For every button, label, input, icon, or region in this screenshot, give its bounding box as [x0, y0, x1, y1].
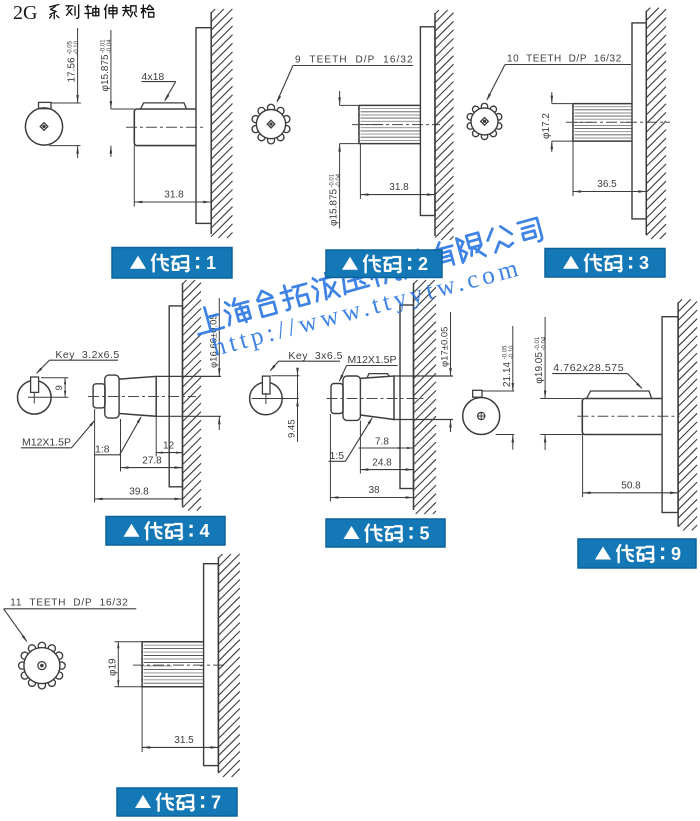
svg-text:27.8: 27.8 [142, 455, 162, 466]
svg-text:φ19: φ19 [107, 658, 118, 676]
svg-text:9.45: 9.45 [286, 420, 297, 439]
svg-text:39.8: 39.8 [129, 487, 149, 498]
svg-text:24.8: 24.8 [372, 457, 392, 468]
svg-text:4: 4 [199, 521, 209, 541]
svg-text:-0.10: -0.10 [509, 345, 515, 359]
svg-text:φ17±0.05: φ17±0.05 [440, 327, 451, 367]
svg-text:21.14: 21.14 [502, 362, 513, 387]
svg-text:7.8: 7.8 [375, 437, 389, 448]
svg-text:φ15.875: φ15.875 [100, 54, 111, 92]
svg-text:4.762x28.575: 4.762x28.575 [553, 362, 624, 374]
svg-text:17.56: 17.56 [67, 57, 78, 82]
svg-text:9: 9 [54, 385, 65, 390]
svg-text:38: 38 [368, 485, 380, 496]
svg-text:12: 12 [163, 440, 175, 451]
svg-text:-0.01: -0.01 [535, 336, 541, 350]
svg-text:2: 2 [418, 254, 428, 274]
svg-text:10 TEETH D/P 16/32: 10 TEETH D/P 16/32 [507, 54, 622, 65]
svg-text:50.8: 50.8 [621, 481, 641, 492]
svg-text:-0.01: -0.01 [101, 39, 107, 53]
svg-text:-0.01: -0.01 [329, 173, 335, 187]
svg-text:9: 9 [671, 544, 681, 564]
svg-text:φ15.875: φ15.875 [329, 188, 340, 226]
svg-text:31.8: 31.8 [164, 190, 184, 201]
svg-text:-0.04: -0.04 [336, 173, 342, 187]
svg-text:M12X1.5P: M12X1.5P [22, 437, 71, 449]
svg-text:36.5: 36.5 [597, 179, 617, 190]
svg-text:3: 3 [639, 253, 649, 273]
svg-text:-0.10: -0.10 [74, 40, 80, 54]
svg-text:2G: 2G [13, 2, 37, 24]
svg-text:5: 5 [419, 524, 429, 544]
svg-text:-0.05: -0.05 [67, 40, 73, 54]
svg-text:Key 3x6.5: Key 3x6.5 [288, 350, 343, 362]
svg-text:7: 7 [211, 793, 221, 813]
svg-text:-0.04: -0.04 [107, 39, 113, 53]
svg-text:-0.04: -0.04 [542, 336, 548, 350]
svg-text:9 TEETH D/P 16/32: 9 TEETH D/P 16/32 [295, 55, 414, 66]
svg-text:31.5: 31.5 [174, 735, 194, 746]
svg-text:1: 1 [206, 253, 216, 273]
svg-text:-0.05: -0.05 [503, 345, 509, 359]
svg-text:1:8: 1:8 [95, 444, 110, 456]
svg-text:Key 3.2x6.5: Key 3.2x6.5 [55, 349, 119, 361]
svg-text:11 TEETH D/P 16/32: 11 TEETH D/P 16/32 [10, 598, 128, 609]
svg-text:φ17.2: φ17.2 [541, 113, 552, 139]
svg-text:1:5: 1:5 [330, 450, 345, 462]
svg-text:M12X1.5P: M12X1.5P [348, 354, 397, 366]
svg-text:31.8: 31.8 [389, 182, 409, 193]
svg-text:φ19.05: φ19.05 [534, 352, 545, 384]
